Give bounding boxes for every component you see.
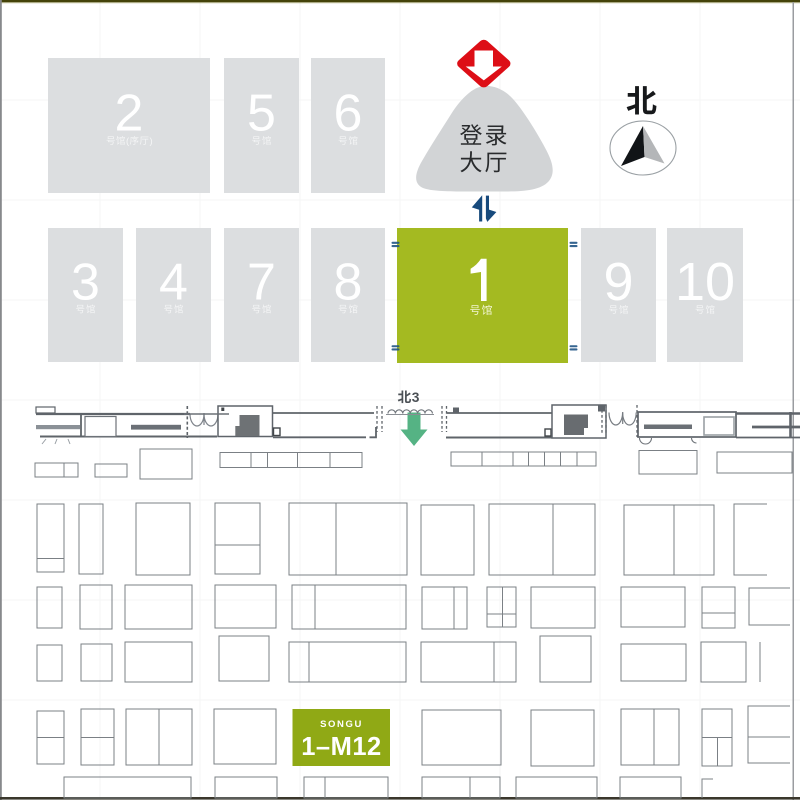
svg-text:4: 4 [159,254,188,312]
svg-text:8: 8 [334,254,363,312]
svg-text:3: 3 [71,254,100,312]
svg-text:10: 10 [675,252,735,312]
svg-text:): ) [150,136,153,147]
svg-text:3: 3 [412,390,420,405]
svg-text:9: 9 [603,252,633,312]
svg-text:SONGU: SONGU [320,719,363,730]
svg-text:2: 2 [115,85,144,143]
svg-text:7: 7 [247,254,276,312]
svg-text:6: 6 [334,85,363,143]
svg-text:1–M12: 1–M12 [301,733,381,761]
svg-text:5: 5 [247,85,276,143]
